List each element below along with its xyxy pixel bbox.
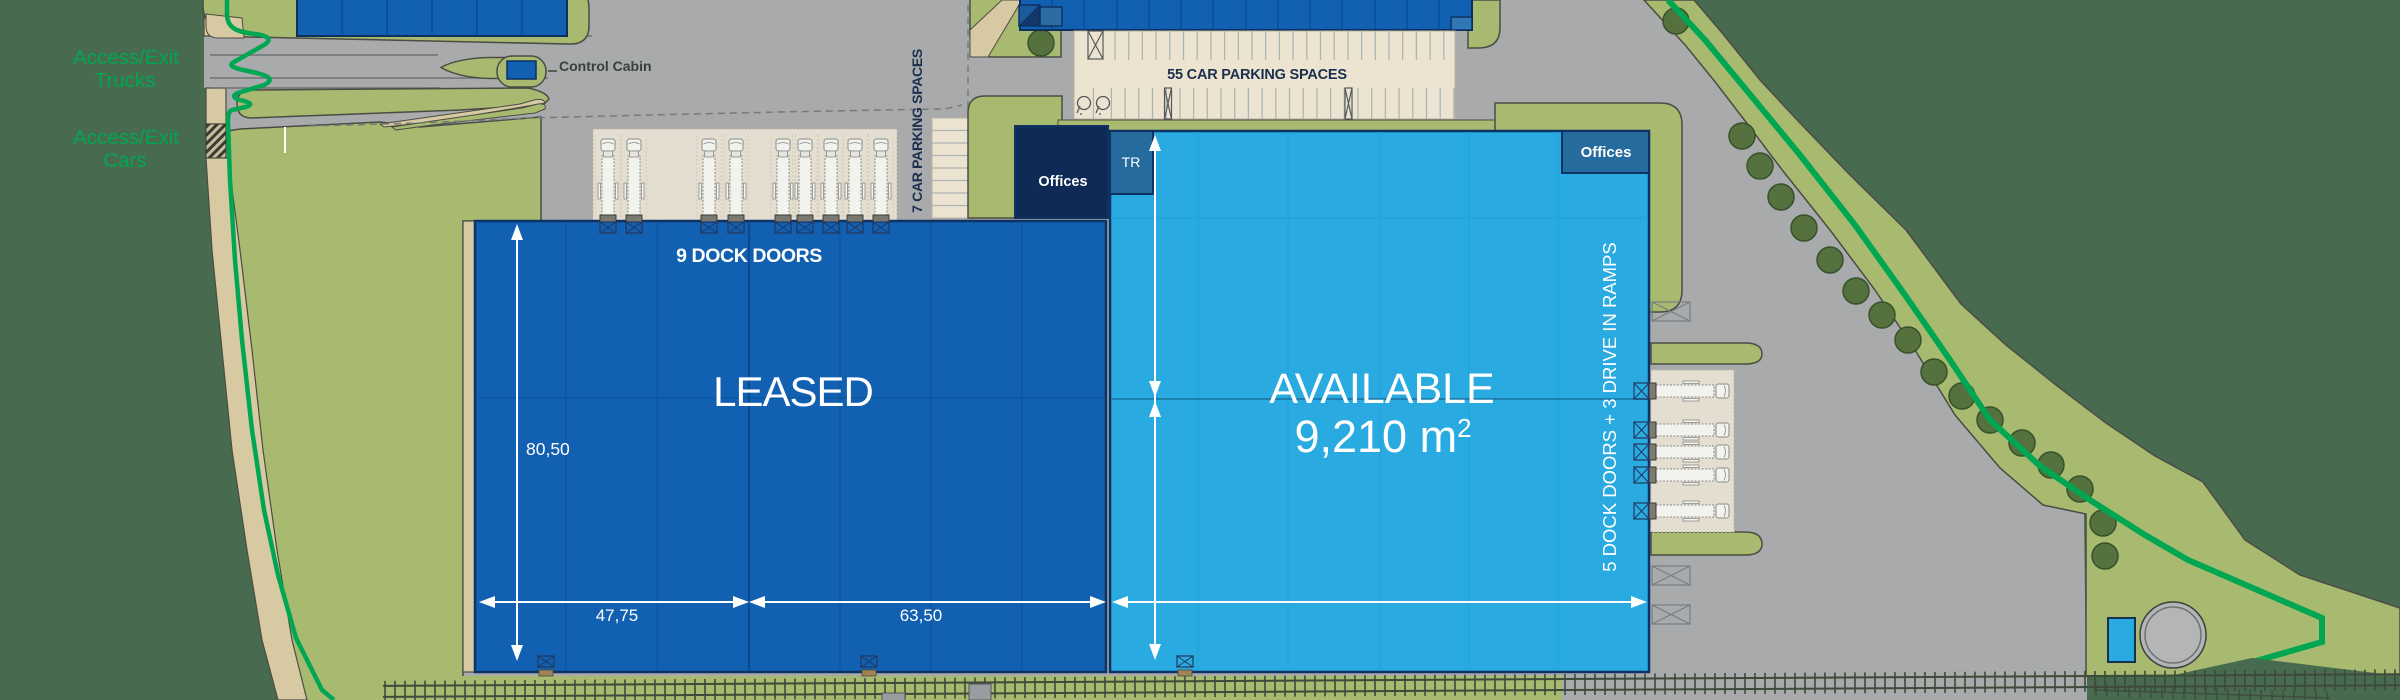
svg-text:5 DOCK DOORS + 3 DRIVE IN RAMP: 5 DOCK DOORS + 3 DRIVE IN RAMPS [1599, 242, 1620, 571]
svg-text:63,50: 63,50 [900, 606, 943, 625]
svg-text:LEASED: LEASED [713, 368, 873, 415]
svg-text:9 DOCK DOORS: 9 DOCK DOORS [676, 245, 822, 267]
svg-text:AVAILABLE: AVAILABLE [1269, 365, 1494, 413]
svg-text:TR: TR [1122, 154, 1141, 170]
svg-text:80,50: 80,50 [526, 439, 570, 459]
svg-text:Trucks: Trucks [95, 69, 156, 92]
svg-text:47,75: 47,75 [596, 606, 639, 625]
svg-text:Offices: Offices [1581, 144, 1632, 161]
svg-text:55 CAR PARKING SPACES: 55 CAR PARKING SPACES [1167, 67, 1347, 83]
svg-text:Offices: Offices [1038, 174, 1087, 190]
svg-text:9,210 m2: 9,210 m2 [1294, 411, 1471, 462]
svg-text:Control Cabin: Control Cabin [559, 58, 652, 74]
svg-text:Cars: Cars [103, 149, 146, 172]
svg-text:Access/Exit: Access/Exit [73, 126, 179, 149]
svg-text:Access/Exit: Access/Exit [73, 46, 179, 69]
svg-text:7 CAR PARKING SPACES: 7 CAR PARKING SPACES [909, 49, 925, 213]
